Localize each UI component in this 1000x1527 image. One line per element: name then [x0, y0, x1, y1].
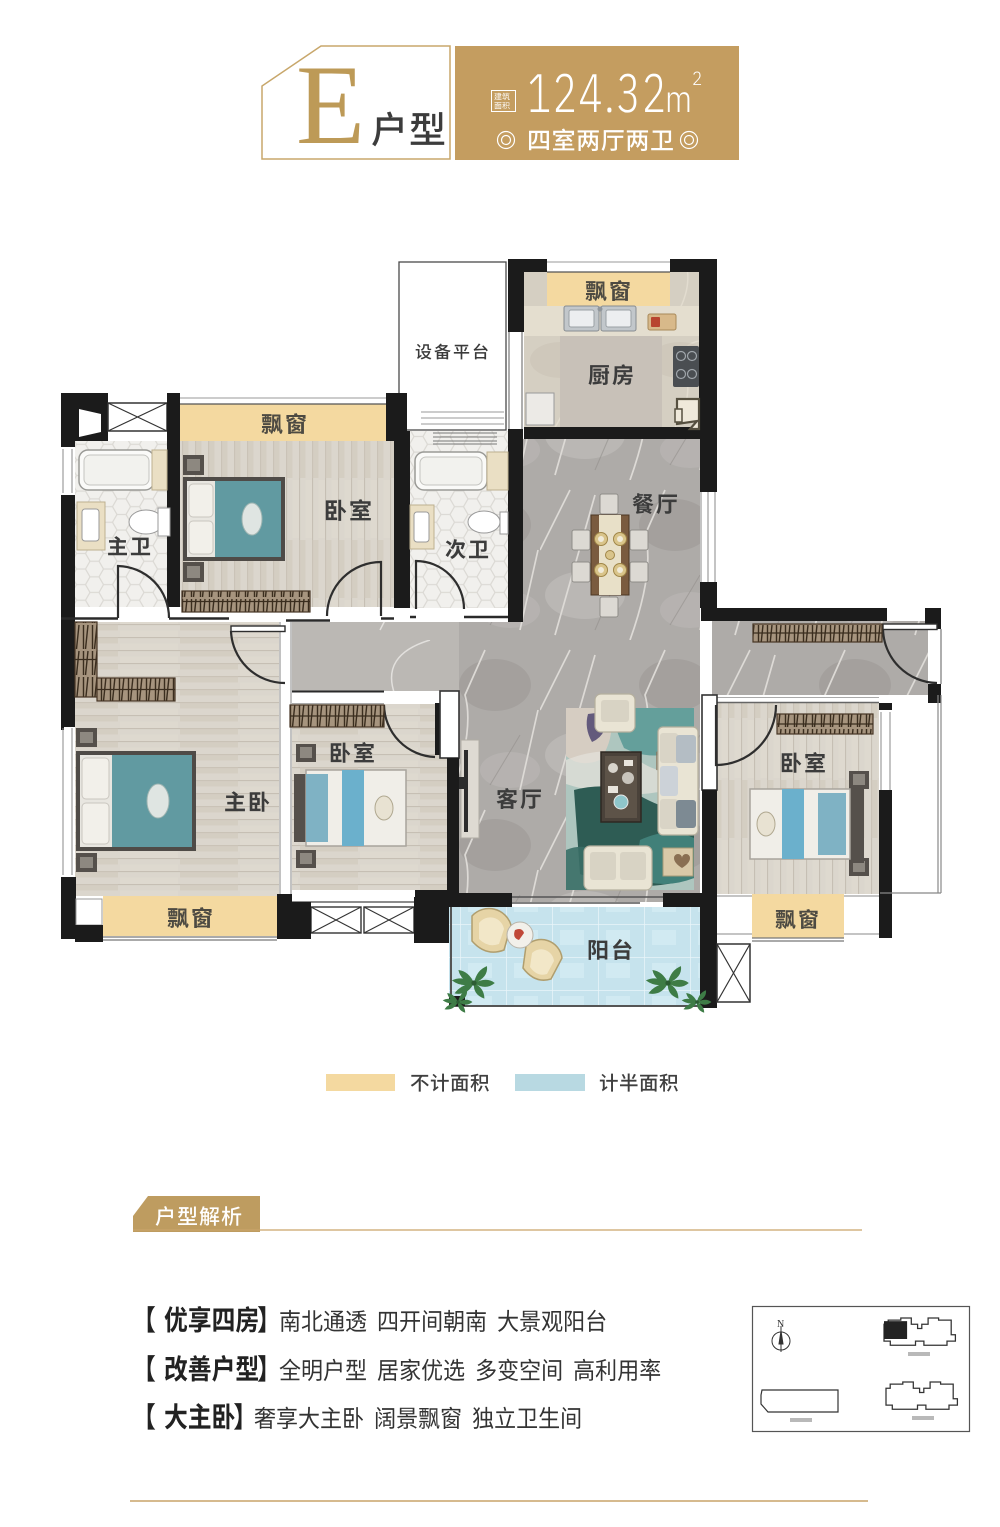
svg-text:N: N: [777, 1319, 784, 1330]
svg-text:E: E: [296, 43, 365, 168]
